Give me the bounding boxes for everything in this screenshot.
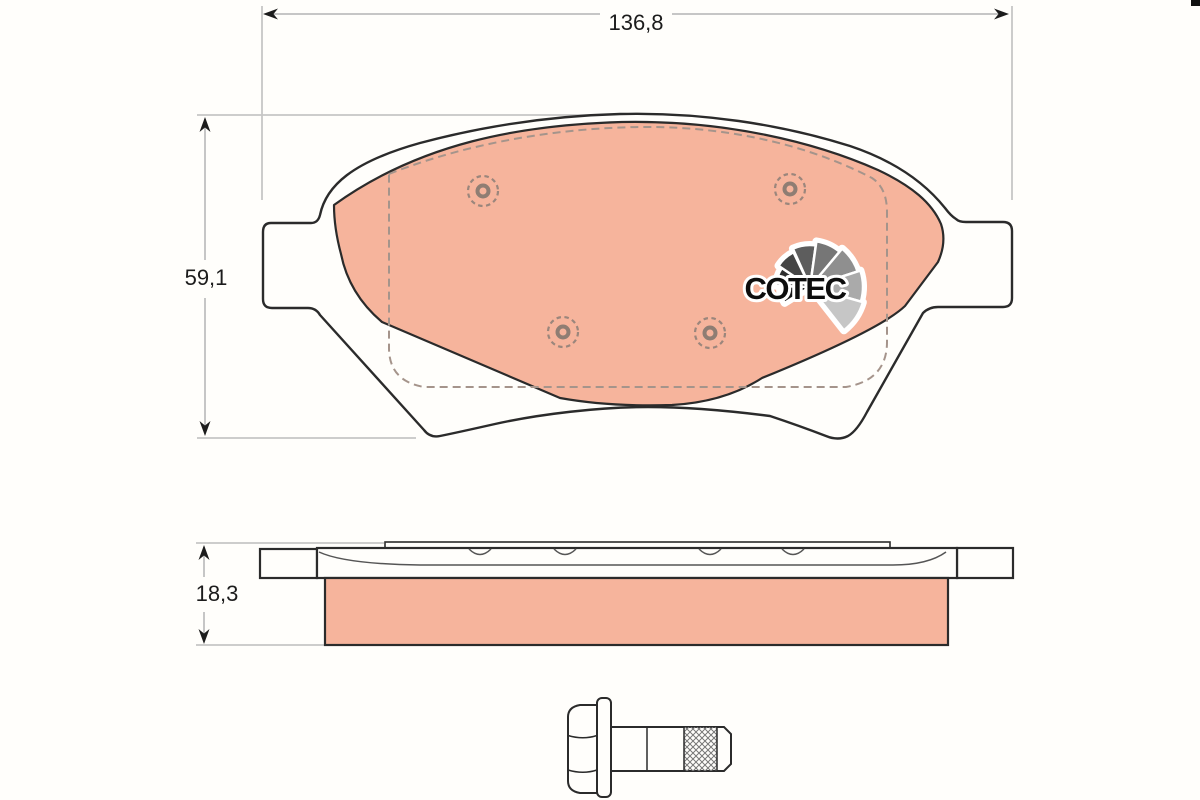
dimension-thickness-value: 18,3 <box>196 581 239 606</box>
dimension-width-value: 136,8 <box>608 10 663 35</box>
pad-side-view <box>260 542 1013 645</box>
logo-text: COTEC <box>745 271 847 306</box>
brake-pad-technical-drawing: 136,8 59,1 18,3 <box>0 0 1200 800</box>
backplate-side <box>317 548 957 578</box>
corner-crop-mark <box>1191 0 1200 6</box>
bolt-hex-head <box>568 705 597 793</box>
dimension-height-value: 59,1 <box>185 265 228 290</box>
friction-material-side <box>325 578 948 645</box>
mounting-bolt <box>568 698 731 797</box>
pad-front-view: COTEC <box>263 114 1012 439</box>
left-ear-tab-side <box>260 549 317 578</box>
bolt-flange-washer <box>597 698 611 797</box>
technical-drawing-canvas: 136,8 59,1 18,3 <box>0 0 1200 800</box>
right-ear-tab-side <box>957 548 1013 578</box>
bolt-thread-knurl <box>684 727 717 771</box>
